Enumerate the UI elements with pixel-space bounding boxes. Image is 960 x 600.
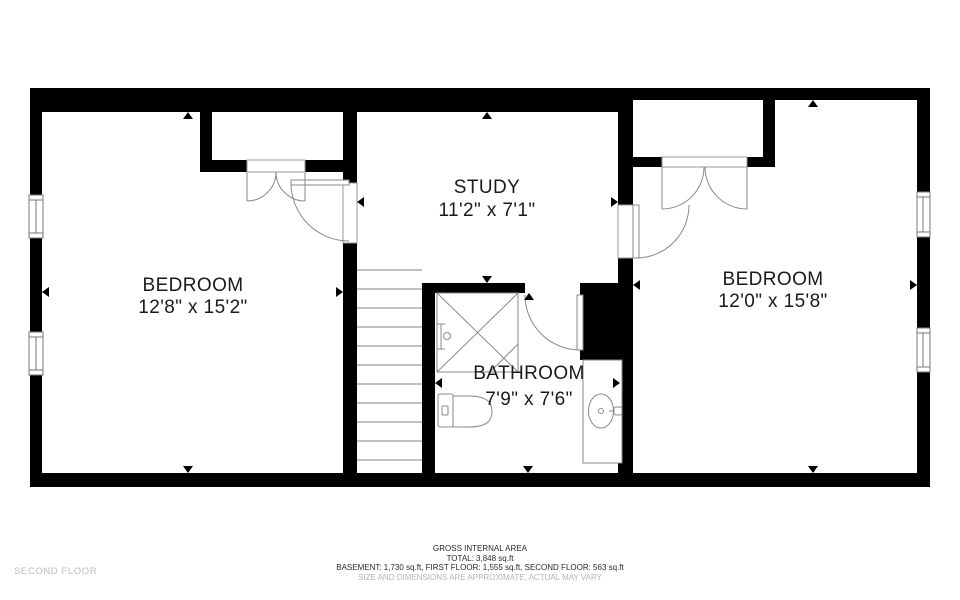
window-right-lower: [917, 328, 930, 372]
dim-arrow-right: [336, 287, 343, 297]
sink-drain: [599, 409, 604, 414]
door-study-to-left-bedroom: [291, 180, 349, 241]
dim-arrow-left: [633, 280, 640, 290]
dim-arrow-right: [910, 280, 917, 290]
window-left-upper: [29, 195, 43, 238]
opening-bathroom-door: [525, 283, 580, 293]
door-leaf: [633, 205, 639, 258]
door-swing-arc: [291, 183, 349, 241]
door-leaf: [577, 295, 583, 350]
wall-closet-right-side: [763, 100, 775, 157]
wall-bathroom-top: [427, 283, 525, 293]
shower: [437, 293, 518, 372]
toilet: [438, 394, 492, 427]
window-right-upper: [917, 192, 930, 237]
opening-bedroom-right-door: [618, 205, 633, 258]
area-summary-total: TOTAL: 3,848 sq.ft: [0, 554, 960, 564]
dim-arrow-left: [42, 287, 49, 297]
opening-closet-left: [247, 160, 305, 172]
room-study: STUDY 11'2" x 7'1": [438, 177, 535, 221]
door-swing-arc: [247, 172, 276, 201]
dim-arrow-down: [808, 466, 818, 473]
room-dimensions: 7'9" x 7'6": [485, 389, 572, 410]
area-summary: GROSS INTERNAL AREA TOTAL: 3,848 sq.ft B…: [0, 544, 960, 582]
door-closet-left: [247, 172, 305, 201]
dim-arrow-down: [482, 276, 492, 283]
wall-void-block: [580, 283, 622, 360]
dim-arrow-up: [183, 112, 193, 119]
door-leaf: [291, 180, 349, 185]
valve-knob: [444, 333, 451, 340]
wall-top-right: [633, 88, 930, 100]
sink: [583, 360, 622, 463]
door-swing-arc: [525, 295, 580, 350]
dim-arrow-left: [435, 378, 442, 388]
room-bedroom-right: BEDROOM 12'0" x 15'8": [718, 269, 827, 312]
floor-label: SECOND FLOOR: [14, 566, 97, 577]
floorplan-drawing: BEDROOM 12'8" x 15'2" STUDY 11'2" x 7'1"…: [0, 0, 960, 600]
area-summary-title: GROSS INTERNAL AREA: [0, 544, 960, 554]
door-closet-right: [662, 167, 747, 209]
room-name: BEDROOM: [723, 269, 824, 290]
door-swing-arc: [636, 205, 689, 258]
stairs: [357, 270, 422, 460]
dim-arrow-down: [523, 466, 533, 473]
dim-arrow-up: [482, 112, 492, 119]
dim-arrow-down: [183, 466, 193, 473]
wall-bottom: [30, 473, 930, 487]
room-name: BEDROOM: [143, 275, 244, 296]
room-bathroom: BATHROOM 7'9" x 7'6": [473, 363, 585, 410]
room-name: BATHROOM: [473, 363, 585, 384]
door-swing-arc: [276, 172, 305, 201]
wall-right: [917, 88, 930, 487]
dim-arrow-right: [611, 197, 618, 207]
room-name: STUDY: [454, 177, 520, 198]
door-swing-arc: [705, 167, 747, 209]
wall-left: [30, 88, 42, 487]
sink-faucet: [614, 407, 622, 415]
area-summary-breakdown: BASEMENT: 1,730 sq.ft, FIRST FLOOR: 1,55…: [0, 563, 960, 573]
room-dimensions: 12'8" x 15'2": [138, 297, 247, 318]
door-swing-arc: [662, 167, 704, 209]
room-dimensions: 11'2" x 7'1": [438, 200, 535, 221]
door-bathroom: [525, 295, 583, 350]
window-left-lower: [29, 332, 43, 375]
area-summary-disclaimer: SIZE AND DIMENSIONS ARE APPROXIMATE, ACT…: [0, 573, 960, 583]
room-dimensions: 12'0" x 15'8": [718, 291, 827, 312]
dim-arrow-left: [357, 197, 364, 207]
floorplan-page: BEDROOM 12'8" x 15'2" STUDY 11'2" x 7'1"…: [0, 0, 960, 600]
room-bedroom-left: BEDROOM 12'8" x 15'2": [138, 275, 247, 318]
dim-arrow-up: [808, 100, 818, 107]
opening-closet-right: [662, 157, 747, 167]
wall-stairs-bathroom: [422, 283, 435, 473]
wall-top-left: [30, 88, 633, 112]
opening-bedroom-left-door: [343, 183, 357, 243]
door-study-to-right-bedroom: [633, 205, 689, 258]
toilet-button: [442, 406, 448, 415]
